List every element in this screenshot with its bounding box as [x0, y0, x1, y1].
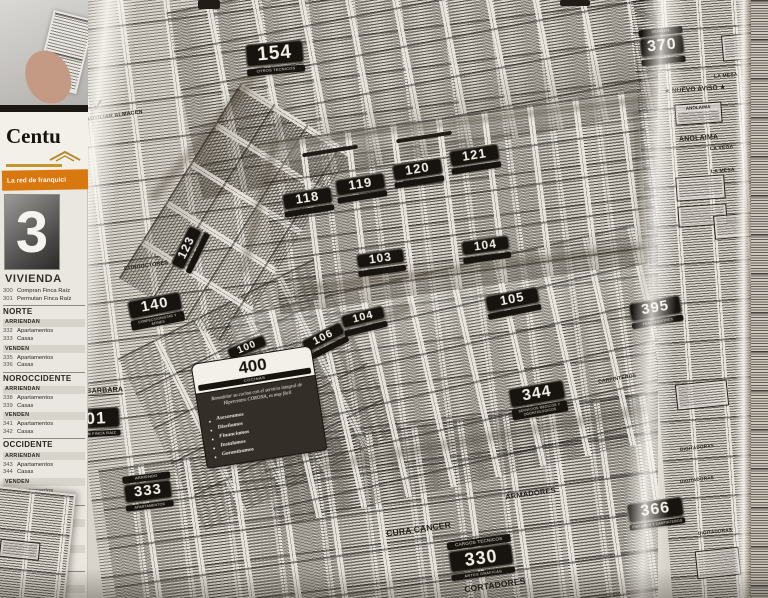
boxed-ad-text [678, 111, 720, 123]
page-gap-shadow [735, 0, 751, 598]
index-item-code: 333 [3, 336, 14, 344]
index-item-label: Apartamentos [17, 328, 53, 336]
sidebar-index-item: 343Apartamentos [3, 462, 85, 470]
photo-hand-holding-newspaper [0, 0, 88, 106]
sidebar-group-label: ARRIENDAN [3, 452, 85, 460]
boxed-ad [675, 174, 726, 201]
overlapping-page-corner [0, 486, 76, 598]
sidebar-group-label: ARRIENDAN [3, 319, 85, 327]
index-item-label: Casas [17, 336, 33, 344]
index-item-label: Apartamentos [17, 355, 53, 363]
far-edge-column [751, 0, 768, 598]
index-item-code: 300 [3, 288, 14, 296]
edge-on-badge [198, 0, 220, 9]
index-item-code: 332 [3, 328, 14, 336]
boxed-ad [675, 379, 729, 410]
century-roof-icon [48, 150, 82, 162]
gold-rule [6, 164, 62, 167]
sidebar-index-item: 341Apartamentos [3, 421, 85, 429]
index-item-label: Permutan Finca Raíz [17, 296, 71, 304]
index-item-code: 301 [3, 296, 14, 304]
index-item-code: 338 [3, 395, 14, 403]
sidebar-index-item: 335Apartamentos [3, 355, 85, 363]
index-item-label: Casas [17, 469, 33, 477]
franchise-tagline-bar: La red de franquici [2, 169, 88, 190]
sidebar-group-label: ARRIENDAN [3, 386, 85, 394]
sidebar-index-item: 336Casas [3, 362, 85, 370]
index-item-label: Casas [17, 429, 33, 437]
index-item-code: 336 [3, 362, 14, 370]
section-number-tile: 3 [4, 194, 60, 270]
divider-bar [0, 105, 88, 112]
boxed-ad-text [678, 178, 722, 199]
checkmark-icon: ✓ [91, 95, 106, 115]
corona-kitchens-ad: 400 COCINAS Remodelar su cocina con el s… [190, 345, 327, 469]
century-logo: Centu [0, 112, 88, 170]
section-title: VIVIENDA [5, 273, 62, 285]
index-item-code: 342 [3, 429, 14, 437]
edge-on-badge [560, 0, 590, 6]
index-item-code: 341 [3, 421, 14, 429]
index-item-label: Casas [17, 403, 33, 411]
century-logo-text: Centu [6, 124, 61, 149]
section-badge-370: VENDEN 370 [638, 26, 685, 66]
boxed-ad-anolaima: ANOLAIMA [674, 101, 722, 125]
sidebar-zone-header: NORTE [3, 305, 85, 317]
sidebar-index-item: 338Apartamentos [3, 395, 85, 403]
sidebar-zone-header: NOROCCIDENTE [3, 372, 85, 384]
sidebar-zone-header: OCCIDENTE [3, 438, 85, 450]
sidebar-index-item: 339Casas [3, 403, 85, 411]
section-badge-154: 154 OTROS TECNICOS [245, 40, 306, 76]
badge-number: 370 [639, 34, 685, 58]
sidebar-group-label: VENDEN [3, 345, 85, 353]
index-item-code: 339 [3, 403, 14, 411]
index-item-label: Apartamentos [17, 395, 53, 403]
index-item-label: Casas [17, 362, 33, 370]
sidebar-index-item: 300Compran Finca Raíz [3, 288, 85, 296]
index-item-code: 344 [3, 469, 14, 477]
boxed-ad-text [678, 383, 726, 408]
boxed-ad-text [698, 550, 738, 576]
index-item-label: Apartamentos [17, 462, 53, 470]
sidebar-index-item: 342Casas [3, 429, 85, 437]
index-item-label: Compran Finca Raíz [17, 288, 70, 296]
sidebar-index-item: 301Permutan Finca Raíz [3, 296, 85, 304]
sidebar-group-label: VENDEN [3, 478, 85, 486]
newspaper-photo-page: 154 OTROS TECNICOS VENDEN 370 123 118 11… [0, 0, 768, 598]
index-item-label: Apartamentos [17, 421, 53, 429]
index-item-code: 335 [3, 355, 14, 363]
badge-number: 154 [245, 40, 305, 68]
index-item-code: 343 [3, 462, 14, 470]
sidebar-group-label: VENDEN [3, 412, 85, 420]
sidebar-index-item: 332Apartamentos [3, 328, 85, 336]
sidebar-index-item: 344Casas [3, 469, 85, 477]
section-badge-333: ARRIENDO 333 APARTAMENTOS [122, 471, 174, 511]
sidebar-index-item: 333Casas [3, 336, 85, 344]
